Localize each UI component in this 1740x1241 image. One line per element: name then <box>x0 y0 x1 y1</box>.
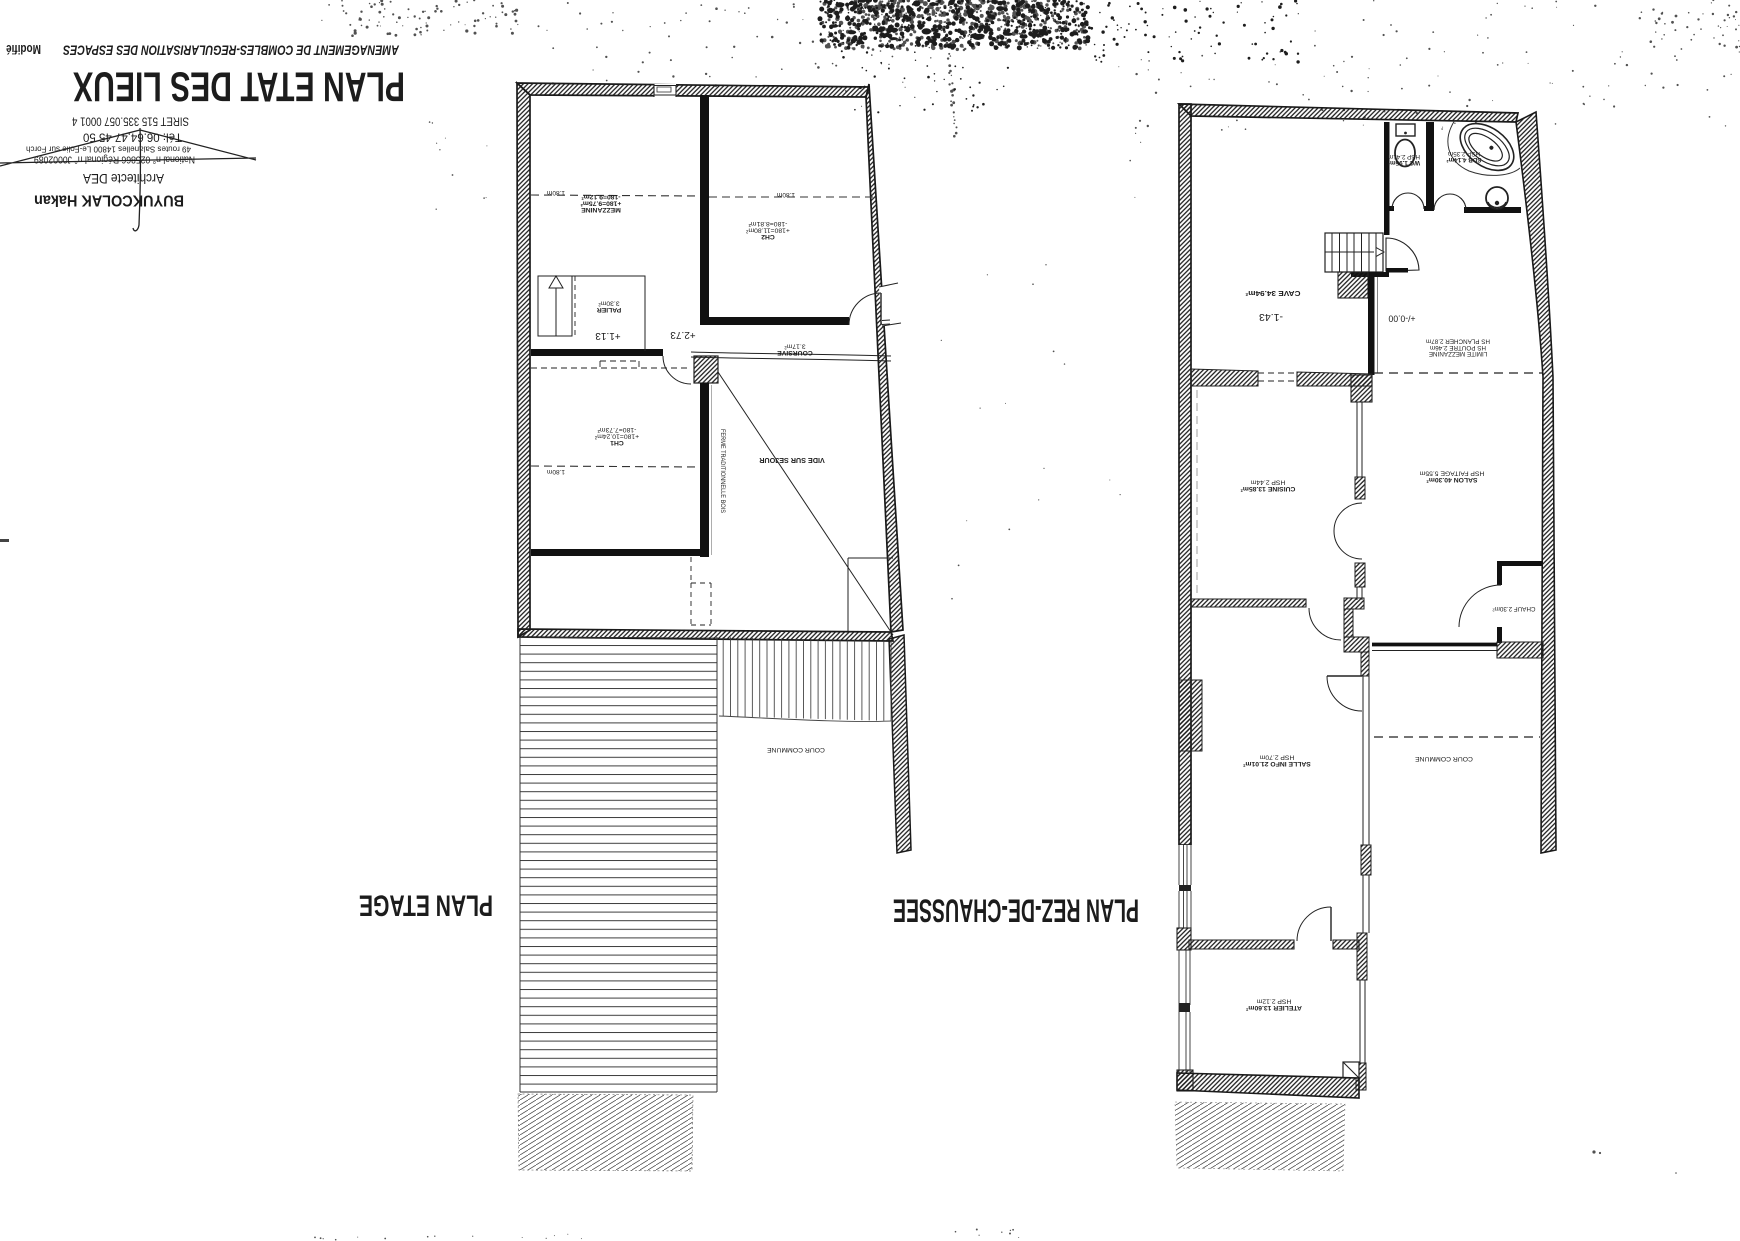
svg-text:FERME TRADITIONNELLE BOIS: FERME TRADITIONNELLE BOIS <box>719 429 726 513</box>
svg-text:49 routes Salanelles 14800 Le-: 49 routes Salanelles 14800 Le-Folie sur … <box>26 145 191 154</box>
svg-text:PLAN ETAGE: PLAN ETAGE <box>359 889 493 922</box>
svg-text:SDB 4.14m²HSP 2.35m: SDB 4.14m²HSP 2.35m <box>1447 150 1482 163</box>
svg-text:SALON 40.30m²HSP FAITAGE 5.55m: SALON 40.30m²HSP FAITAGE 5.55m <box>1419 470 1484 484</box>
svg-text:PLAN REZ-DE-CHAUSSEE: PLAN REZ-DE-CHAUSSEE <box>893 893 1139 929</box>
svg-text:COUR COMMUNE: COUR COMMUNE <box>1415 755 1473 762</box>
svg-text:Architecte DEA: Architecte DEA <box>82 171 164 187</box>
svg-text:WC 1.95m²HSP 2.41m: WC 1.95m²HSP 2.41m <box>1388 153 1420 166</box>
svg-text:1.80m: 1.80m <box>777 191 795 198</box>
svg-text:1.80m: 1.80m <box>547 468 565 475</box>
svg-text:MEZZANINE+180=9.75m²-180=9.12m: MEZZANINE+180=9.75m²-180=9.12m² <box>580 193 622 213</box>
svg-text:Modifié: Modifié <box>6 42 41 56</box>
svg-text:PALIER3.30m²: PALIER3.30m² <box>597 300 622 314</box>
svg-text:AMENAGEMENT DE COMBLES-REGULAR: AMENAGEMENT DE COMBLES-REGULARISATION DE… <box>63 43 400 59</box>
svg-text:VIDE SUR SEJOUR: VIDE SUR SEJOUR <box>758 456 824 465</box>
svg-text:LIMITE MEZZANINEHS POUTRE 2.46: LIMITE MEZZANINEHS POUTRE 2.46mHS PLANCH… <box>1426 338 1490 357</box>
svg-text:COUR COMMUNE: COUR COMMUNE <box>767 746 825 753</box>
svg-text:PLAN ETAT DES LIEUX: PLAN ETAT DES LIEUX <box>73 64 405 111</box>
svg-text:CHAUF 2.30m²: CHAUF 2.30m² <box>1492 605 1535 612</box>
svg-text:CAVE 34.94m²: CAVE 34.94m² <box>1245 289 1301 298</box>
svg-text:SIRET 515 335.057 0001 4: SIRET 515 335.057 0001 4 <box>72 115 189 127</box>
svg-text:-1.43: -1.43 <box>1259 311 1283 323</box>
svg-text:BUYUKCOLAK Hakan: BUYUKCOLAK Hakan <box>34 192 184 209</box>
svg-text:National n° 025866 Régional n: National n° 025866 Régional n° J0002089 <box>34 154 195 165</box>
svg-text:+2.73: +2.73 <box>670 329 696 340</box>
svg-text:+/-0.00: +/-0.00 <box>1389 313 1416 324</box>
svg-text:+1.13: +1.13 <box>595 330 621 341</box>
svg-text:1.80m: 1.80m <box>547 189 565 196</box>
